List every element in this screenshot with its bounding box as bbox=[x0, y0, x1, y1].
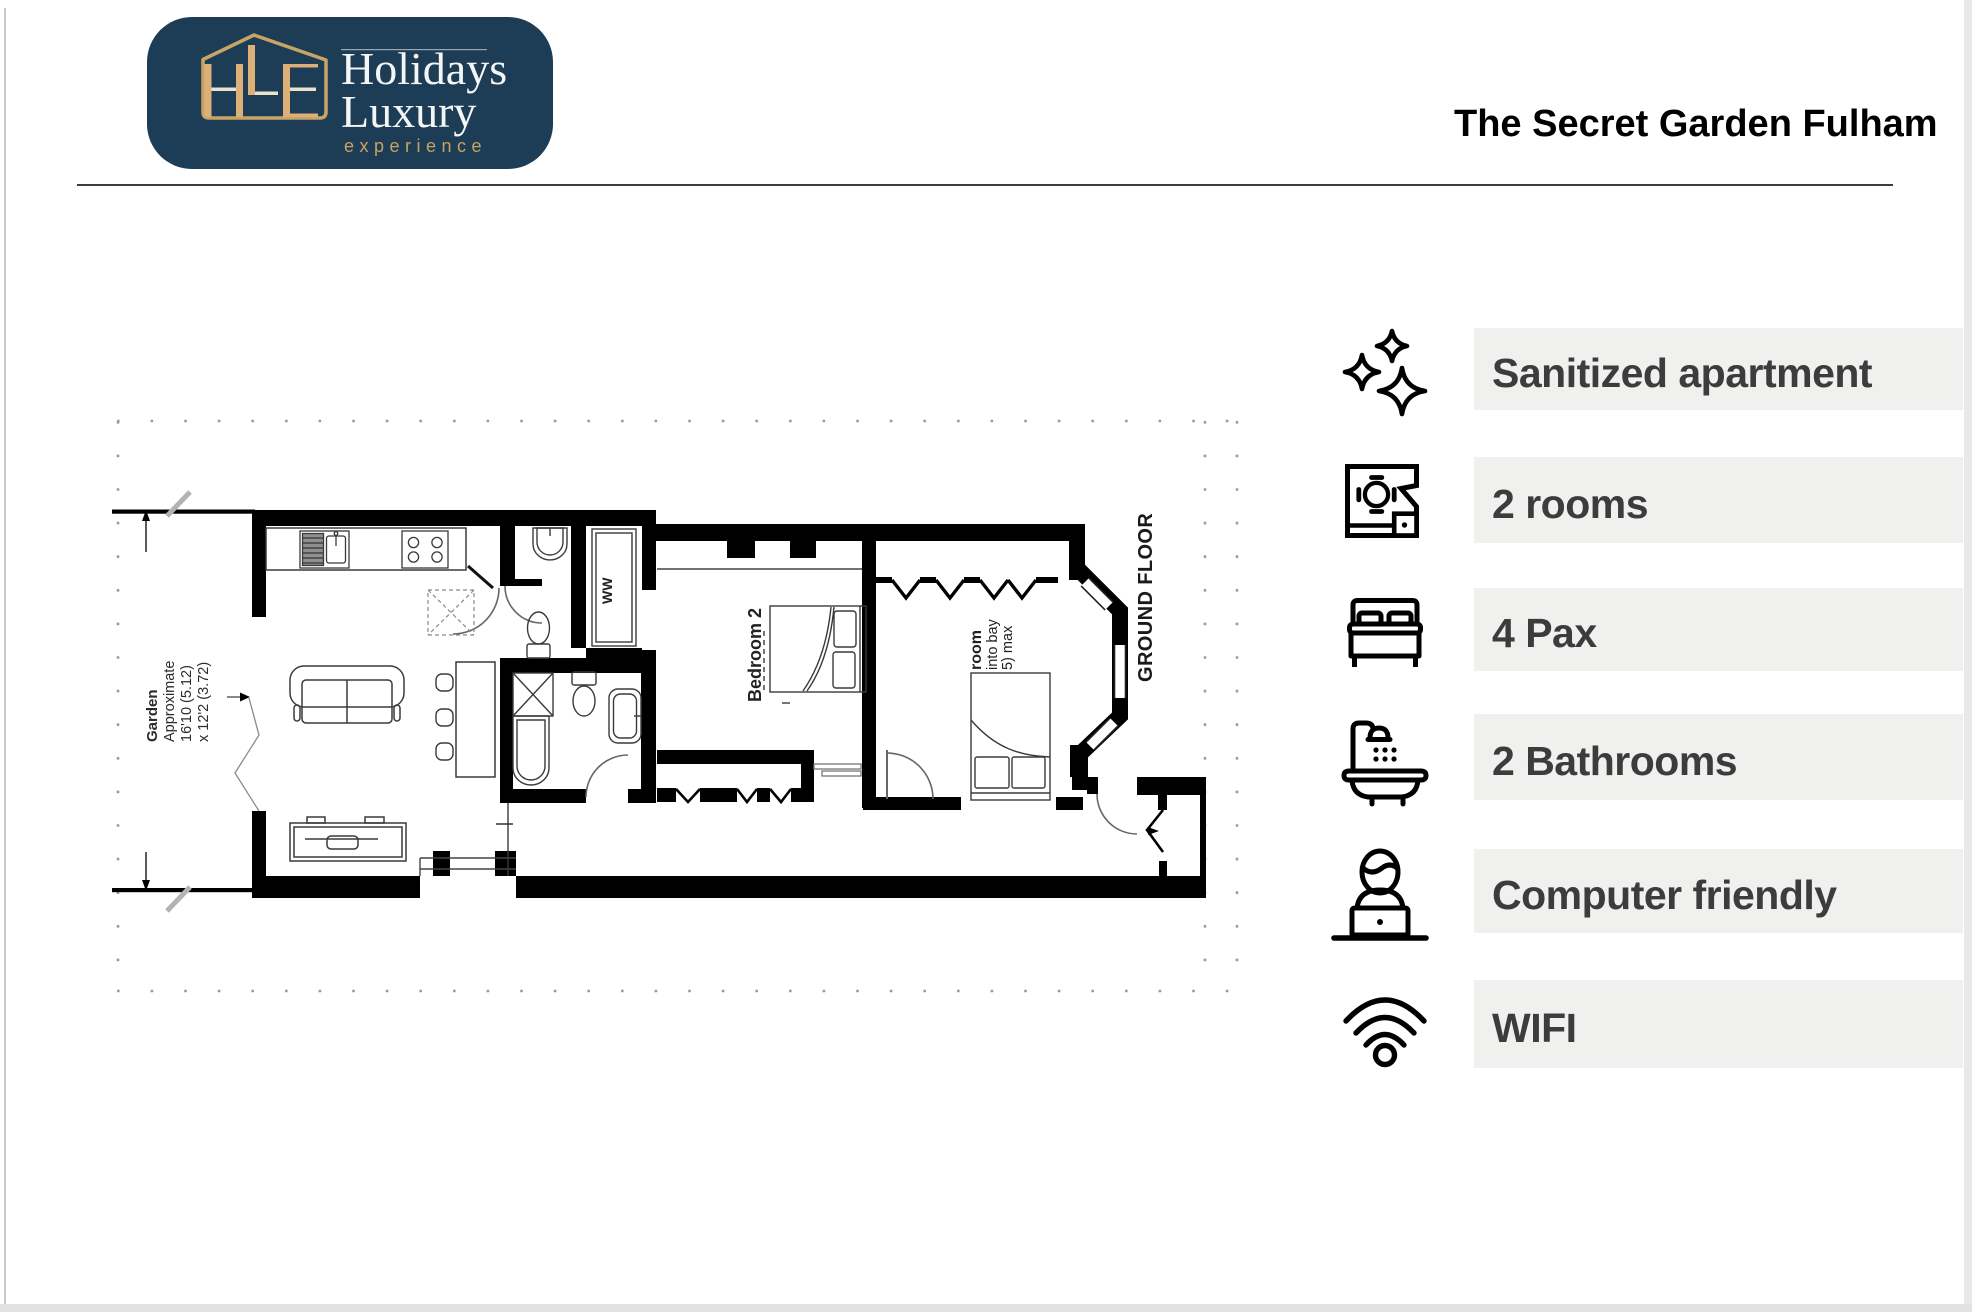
svg-text:into bay: into bay bbox=[985, 618, 1001, 670]
svg-text:experience: experience bbox=[344, 136, 487, 156]
svg-text:GROUND FLOOR: GROUND FLOOR bbox=[1135, 513, 1157, 682]
svg-text:Luxury: Luxury bbox=[341, 86, 476, 137]
svg-text:x 12'2 (3.72): x 12'2 (3.72) bbox=[196, 662, 212, 742]
svg-text:Garden: Garden bbox=[144, 689, 161, 742]
svg-text:Bedroom 2: Bedroom 2 bbox=[745, 608, 765, 702]
svg-text:WW: WW bbox=[599, 577, 615, 604]
svg-text:16'10 (5.12): 16'10 (5.12) bbox=[179, 665, 195, 742]
svg-text:Approximate: Approximate bbox=[162, 661, 178, 742]
svg-text:room: room bbox=[968, 630, 985, 670]
svg-text:5) max: 5) max bbox=[1000, 625, 1016, 670]
